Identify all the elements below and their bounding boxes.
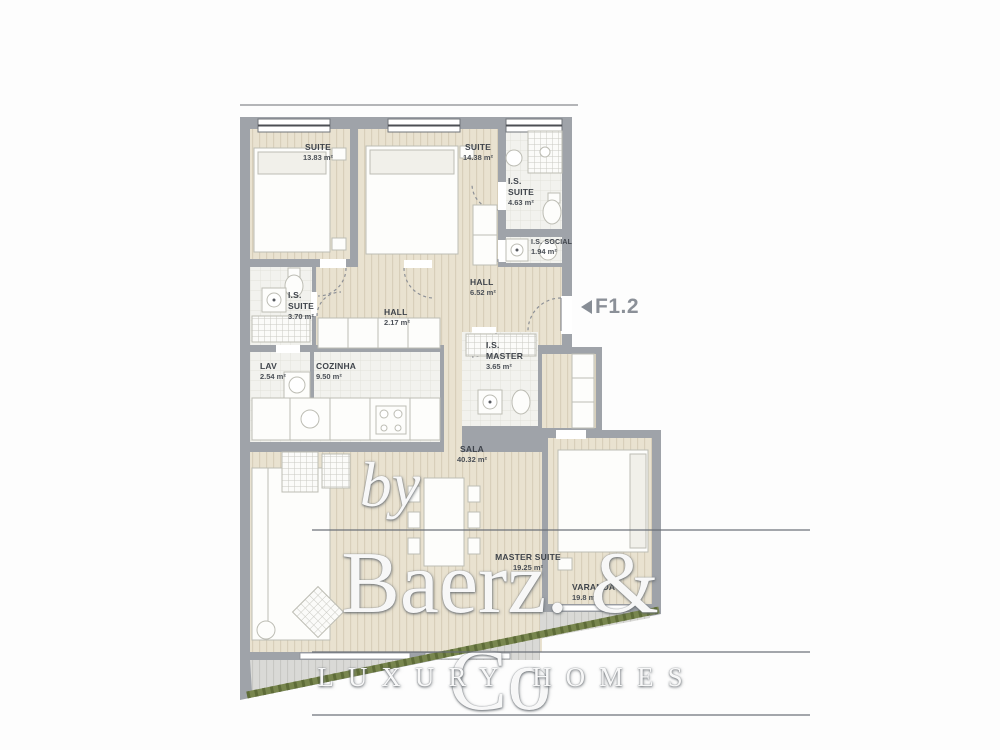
room-label-is-master: I.S. MASTER 3.65 m²	[486, 340, 532, 372]
watermark-by: by	[290, 448, 490, 522]
room-label-hall: HALL 6.52 m²	[470, 277, 520, 298]
watermark-brand: Baerz. & Co	[285, 536, 715, 730]
room-label-hall-2: HALL 2.17 m²	[384, 307, 428, 328]
room-label-cozinha: COZINHA 9.50 m²	[316, 361, 376, 382]
unit-marker-label: F1.2	[595, 296, 639, 317]
watermark-rule-1	[312, 529, 810, 531]
watermark-rule-2	[312, 651, 810, 653]
room-label-is-suite-right: I.S. SUITE 4.63 m²	[508, 176, 542, 208]
watermark-tagline: LUXURY HOMES	[282, 662, 718, 693]
room-label-suite-2: SUITE 14.38 m²	[446, 142, 510, 163]
unit-marker: F1.2	[581, 296, 639, 317]
room-label-suite-1: SUITE 13.83 m²	[286, 142, 350, 163]
room-label-is-social: I.S. SOCIAL 1.94 m²	[531, 238, 577, 257]
watermark-rule-3	[312, 714, 810, 716]
floorplan-page: SUITE 13.83 m² SUITE 14.38 m² I.S. SUITE…	[0, 0, 1000, 750]
room-label-is-suite-left: I.S. SUITE 3.70 m²	[288, 290, 322, 322]
room-label-lav: LAV 2.54 m²	[260, 361, 304, 382]
left-arrow-icon	[581, 300, 592, 314]
